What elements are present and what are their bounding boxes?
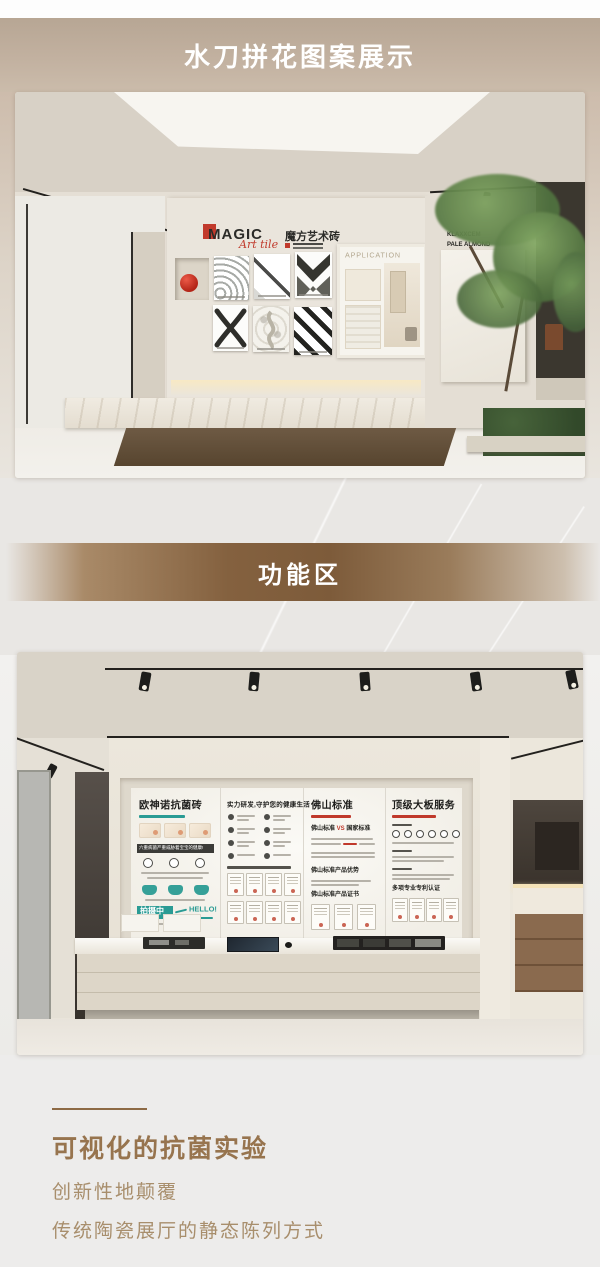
sample-slot [415,939,441,947]
left-doorway [131,232,165,426]
planter-curb [467,436,585,452]
sample-slot [363,939,385,947]
pillar [480,738,510,1044]
service-icon [428,830,436,838]
text-line [273,841,291,843]
drawer-seam [77,972,487,973]
upper-cabinets [513,800,583,884]
panel1-banner-text: 六重病菌严重威胁着宝宝的健康! [139,846,173,851]
text-line [273,854,291,856]
researcher-avatar [264,814,270,820]
hello-text: HELLO! [189,906,217,914]
researcher-avatar [264,840,270,846]
text-line [392,842,454,844]
spotlight-icon [248,672,260,692]
vs-right: 国家标准 [346,825,370,832]
text-line [273,832,285,834]
certificate [392,898,408,922]
shield-icon [142,885,157,895]
cabinet-niche [535,822,579,870]
panel4-title: 顶级大板服务 [392,800,455,810]
certificate [227,901,244,924]
brand-logo-cn: 魔方艺术砖 [285,228,340,244]
text-line [273,819,285,821]
counter-toe-kick [85,1010,479,1019]
text-line [311,880,371,882]
chair [545,324,563,350]
panel3-section2: 佛山标准产品证书 [311,892,359,898]
panel1-subtitle-line [139,815,185,818]
showroom-photo-functional-area[interactable]: 欧神诺抗菌砖 六重病菌严重威胁着宝宝的健康! 拍摄中 [17,652,583,1055]
vs-row: 佛山标准 VS 国家标准 [311,826,370,832]
mini-heading-bar [392,850,412,852]
text-line [237,819,249,821]
section-heading-bar [227,866,291,869]
text-line [145,899,205,901]
panel3-subtitle-line [311,815,351,818]
text-line [273,845,285,847]
service-icon [404,830,412,838]
showroom-photo-waterjet[interactable]: MAGIC Art tile 魔方艺术砖 [15,92,585,478]
text-line [273,815,291,817]
section-divider-band: 功能区 [0,543,600,601]
panel1-title: 欧神诺抗菌砖 [139,800,202,810]
text-line [147,877,203,879]
kitchen-counter [513,888,583,914]
panel4-section1: 多项专业专利认证 [392,886,440,892]
panel3-title: 佛山标准 [311,800,353,810]
certificate [246,901,263,924]
info-panel-slab-service: 顶级大板服务 多项专业专利认证 [385,788,462,938]
text-line [359,843,375,845]
shield-icon [168,885,183,895]
certificate [443,898,459,922]
text-line [237,832,249,834]
application-swatch [345,305,381,349]
info-panel-research: 实力研发,守护您的健康生活 [220,788,303,938]
mini-heading-bar [392,868,412,870]
ceiling [17,652,583,738]
service-icon [452,830,460,838]
text-line [237,854,255,856]
divider-label: 功能区 [258,555,342,590]
certificate [357,904,376,930]
text-line [237,815,255,817]
sample-tray-set [333,936,445,950]
certificate [246,873,263,896]
vs-word: VS [337,825,345,832]
text-line [237,841,255,843]
logo-sub-textline [293,243,323,245]
art-tile-xcurve [213,305,248,351]
application-room-chair [405,327,417,341]
art-tile-diagonal [254,254,290,299]
text-line [392,860,444,862]
certificate [334,904,353,930]
specimen [175,940,189,945]
doorway-floor [536,378,585,400]
text-line [392,878,450,880]
red-accent-line [343,843,357,845]
researcher-avatar [264,827,270,833]
wall-label-card [163,914,201,932]
drawer-seam [77,992,487,993]
text-line [311,884,359,886]
caption-divider-line [52,1108,147,1110]
certificate [265,901,282,924]
light-track [105,668,583,670]
caption-line-1: 创新性地颠覆 [52,1177,178,1204]
ledge-light [171,380,421,396]
sample-slot [337,939,359,947]
touch-screen [227,937,279,952]
certificate [284,901,301,924]
text-line [392,874,454,876]
service-icon [416,830,424,838]
display-wall: MAGIC Art tile 魔方艺术砖 [167,198,425,400]
vs-left: 佛山标准 [311,825,335,832]
panel-seam [26,204,28,424]
text-line [311,852,375,854]
sample-slot [389,939,411,947]
art-tile-stripes [294,307,332,355]
certificate [311,904,330,930]
platform-base [114,428,456,466]
article-page: 水刀拼花图案展示 MAGIC Art [0,0,600,1267]
germ-icon [143,858,153,868]
top-margin [0,0,600,18]
floor [17,1019,583,1055]
art-tile-arcs [214,256,249,300]
certificate [409,898,425,922]
service-icon [440,830,448,838]
application-room-door [390,271,406,313]
mini-heading-bar [392,824,412,826]
magnifier-device [285,942,292,948]
text-line [237,845,249,847]
page-title: 水刀拼花图案展示 [184,37,416,74]
tree-foliage [457,270,542,328]
text-line [141,872,209,874]
logo-sub-square [285,243,290,248]
certificate [227,873,244,896]
caption-block: 可视化的抗菌实验 创新性地颠覆 传统陶瓷展厅的静态陈列方式 [0,1055,600,1267]
section-header-band: 水刀拼花图案展示 [0,18,600,92]
researcher-avatar [264,853,270,859]
baby-photo [164,823,186,838]
text-line [311,843,341,845]
researcher-avatar [228,827,234,833]
shield-icon [194,885,209,895]
panel1-warning-banner: 六重病菌严重威胁着宝宝的健康! [137,844,214,853]
text-line [273,828,291,830]
application-swatch [345,269,381,301]
red-sphere [180,274,198,292]
researcher-avatar [228,840,234,846]
germ-icon [169,858,179,868]
baby-photo [189,823,211,838]
application-title: APPLICATION [345,251,401,259]
specimen-tray [143,937,205,949]
text-line [311,856,375,858]
caption-heading: 可视化的抗菌实验 [52,1129,268,1165]
specimen [149,940,169,945]
application-board: APPLICATION [337,244,427,358]
researcher-avatar [228,853,234,859]
certificate [426,898,442,922]
art-tile-ornate [253,306,289,352]
text-line [311,838,373,840]
certificate [284,873,301,896]
wood-drawers [515,914,583,992]
panel3-section1: 佛山标准产品优势 [311,868,359,874]
panel2-title: 实力研发,守护您的健康生活 [227,801,310,808]
art-tile-chevron [295,252,332,298]
gray-tile-panel [17,770,51,1042]
baby-photo [139,823,161,838]
logo-sub-textline [293,247,323,249]
text-line [392,856,454,858]
brand-logo-script: Art tile [239,238,278,251]
swirl-accent [175,909,187,914]
panel4-subtitle-line [392,815,436,818]
application-room-photo [384,263,420,347]
spotlight-icon [359,672,370,692]
germ-icon [195,858,205,868]
researcher-avatar [228,814,234,820]
info-panel-foshan-standard: 佛山标准 佛山标准 VS 国家标准 佛山标准产品优势 佛山标准产品证书 [303,788,385,938]
text-line [237,828,255,830]
caption-line-2: 传统陶瓷展厅的静态陈列方式 [52,1216,325,1243]
service-icon [392,830,400,838]
wall-label-card [121,914,159,932]
counter-drawers [77,954,487,1010]
certificate [265,873,282,896]
